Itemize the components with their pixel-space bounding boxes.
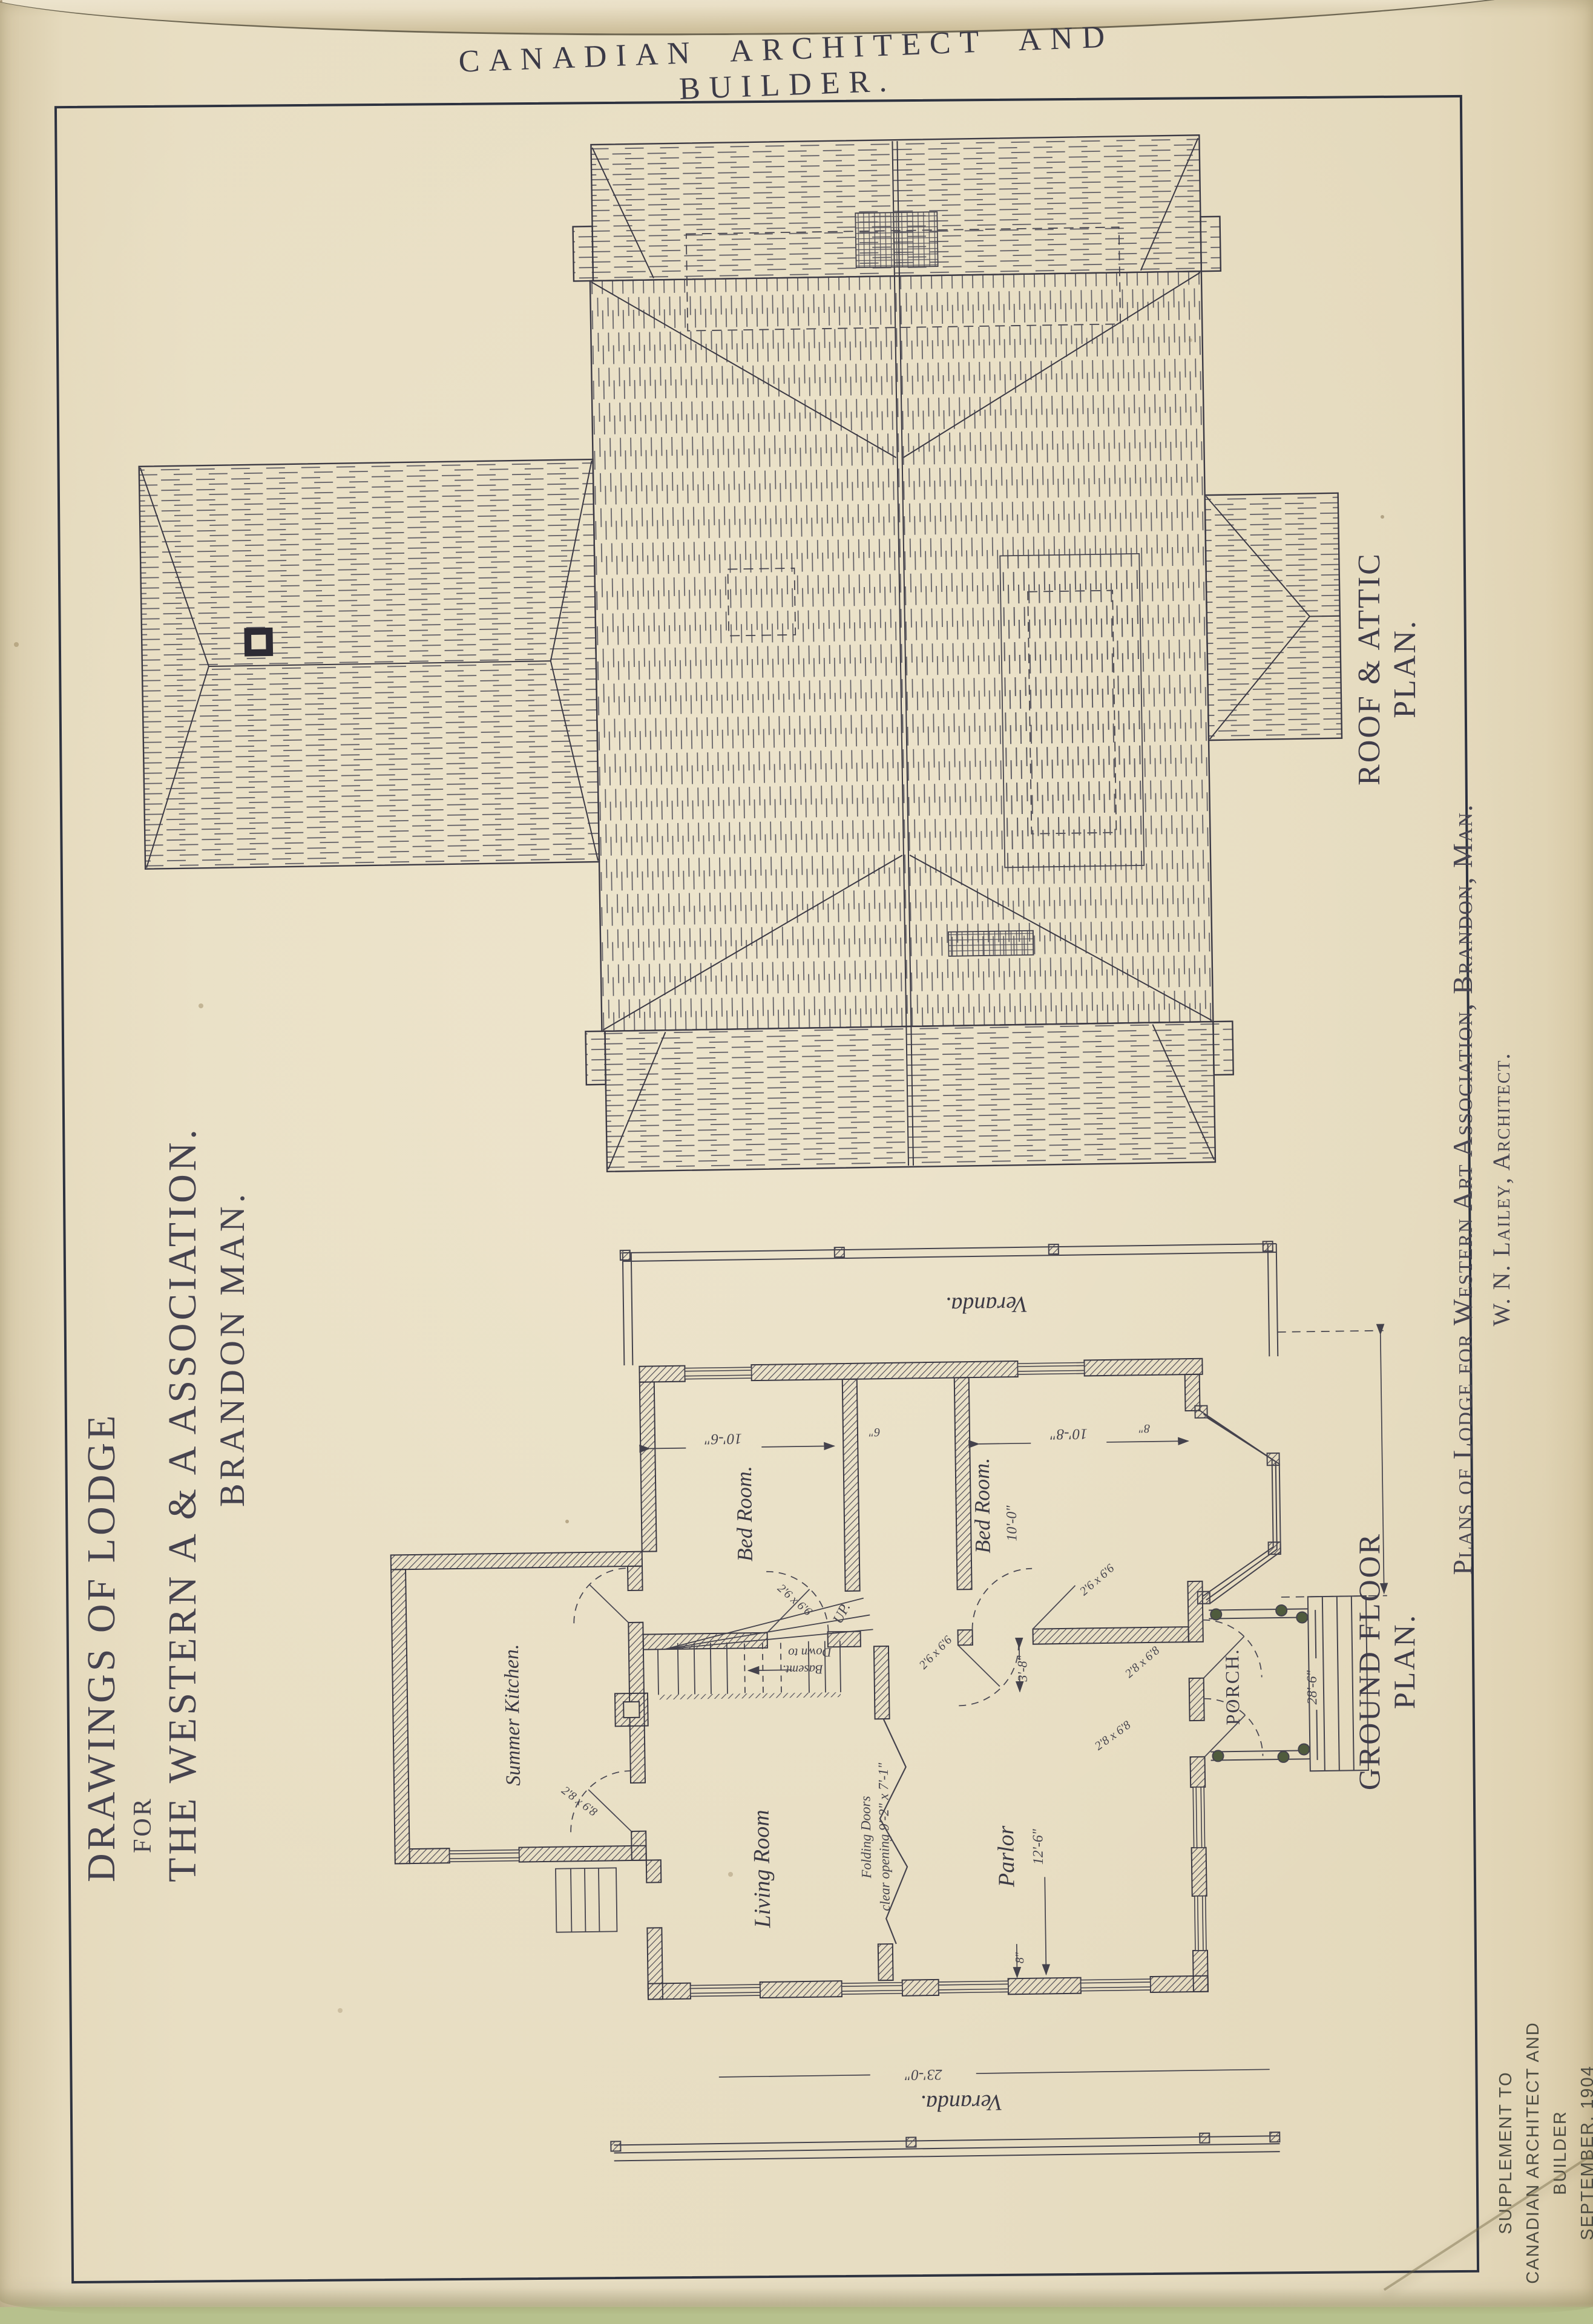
bed-room-left-label: Bed Room. (732, 1466, 757, 1562)
imprint-block: SUPPLEMENT TO CANADIAN ARCHITECT AND BUI… (1493, 1998, 1593, 2307)
imprint-line-1: SUPPLEMENT TO (1493, 1998, 1520, 2307)
ground-floor-plan-caption: GROUND FLOOR PLAN. (1352, 1504, 1412, 1819)
bed-room-right-dim: 10'-0" (1004, 1505, 1020, 1541)
bed-room-right-label: Bed Room. (970, 1458, 995, 1554)
scanned-page: CANADIAN ARCHITECT AND BUILDER. (0, 0, 1593, 2307)
porch-label: PORCH. (1221, 1648, 1244, 1725)
door-size-note: 2'8 x 6'8 (1092, 1718, 1134, 1753)
veranda-length-dim: 23'-0" (904, 2066, 942, 2083)
page-bottom-edge (0, 2288, 1593, 2324)
parlor-dim: 12'-6" (1030, 1828, 1046, 1865)
veranda-dim-line (719, 2069, 1270, 2077)
stairs-down-label-1: Down to (788, 1645, 832, 1660)
wall-eight-tick: 8" (1138, 1422, 1150, 1435)
folding-doors-note-1: Folding Doors (858, 1796, 874, 1879)
windows (442, 1361, 1206, 2000)
veranda-bottom-label: Veranda. (920, 2089, 1003, 2116)
folding-doors-note-2: clear opening 9'-2" x 7'-1" (876, 1762, 893, 1911)
plate-caption-architect: W. N. Lailey, Architect. (1487, 732, 1516, 1646)
veranda-bottom (611, 2132, 1279, 2161)
imprint-line-3: SEPTEMBER, 1904 (1574, 1998, 1593, 2307)
door-size-note: 2'6 x 6'6 (1077, 1561, 1117, 1598)
title-line-3: THE WESTERN A & A ASSOCIATION. (160, 817, 206, 1882)
drawing-title-block: DRAWINGS OF LODGE FOR THE WESTERN A & A … (79, 817, 333, 1882)
wall-six-tick: 6" (869, 1425, 880, 1439)
living-room-label: Living Room (749, 1810, 776, 1929)
side-steps (556, 1868, 617, 1932)
parlor-label: Parlor (993, 1825, 1019, 1888)
title-line-2: FOR (128, 817, 157, 1853)
door-size-note: 2'8 x 6'8 (559, 1784, 600, 1819)
plate-caption-title: Plans of Lodge for Western Art Associati… (1447, 732, 1479, 1646)
door-size-note: 2'6 x 6'6 (775, 1581, 814, 1618)
plate-caption: Plans of Lodge for Western Art Associati… (1447, 732, 1549, 1646)
title-line-1: DRAWINGS OF LODGE (79, 817, 125, 1882)
parlor-wall-tick: 8" (1013, 1952, 1026, 1963)
hall-dim: 3'-8" (1014, 1655, 1030, 1682)
stairs-up-label: UP. (830, 1600, 853, 1626)
roof-plan-caption: ROOF & ATTIC PLAN. (1352, 511, 1418, 826)
chimney (245, 628, 273, 656)
bed-right-dim: 10'-8" (1050, 1425, 1088, 1442)
door-size-note: 2'6 x 6'6 (916, 1633, 954, 1672)
imprint-line-2: CANADIAN ARCHITECT AND BUILDER (1520, 1998, 1574, 2307)
door-size-note: 2'8 x 6'8 (1123, 1644, 1162, 1681)
stairs-down-label-2: Basemt. (783, 1663, 823, 1678)
ground-floor-plan-drawing: Veranda. (380, 1215, 1399, 2258)
bed-left-dim: 10'-6" (705, 1430, 743, 1447)
bay-window (1195, 1405, 1281, 1604)
paper-specks (0, 0, 2, 2)
veranda-top-label: Veranda. (945, 1292, 1028, 1318)
summer-kitchen-label: Summer Kitchen. (501, 1644, 525, 1786)
porch-steps-dim: 28'-6" (1304, 1670, 1320, 1704)
title-line-4: BRANDON MAN. (212, 817, 252, 1507)
